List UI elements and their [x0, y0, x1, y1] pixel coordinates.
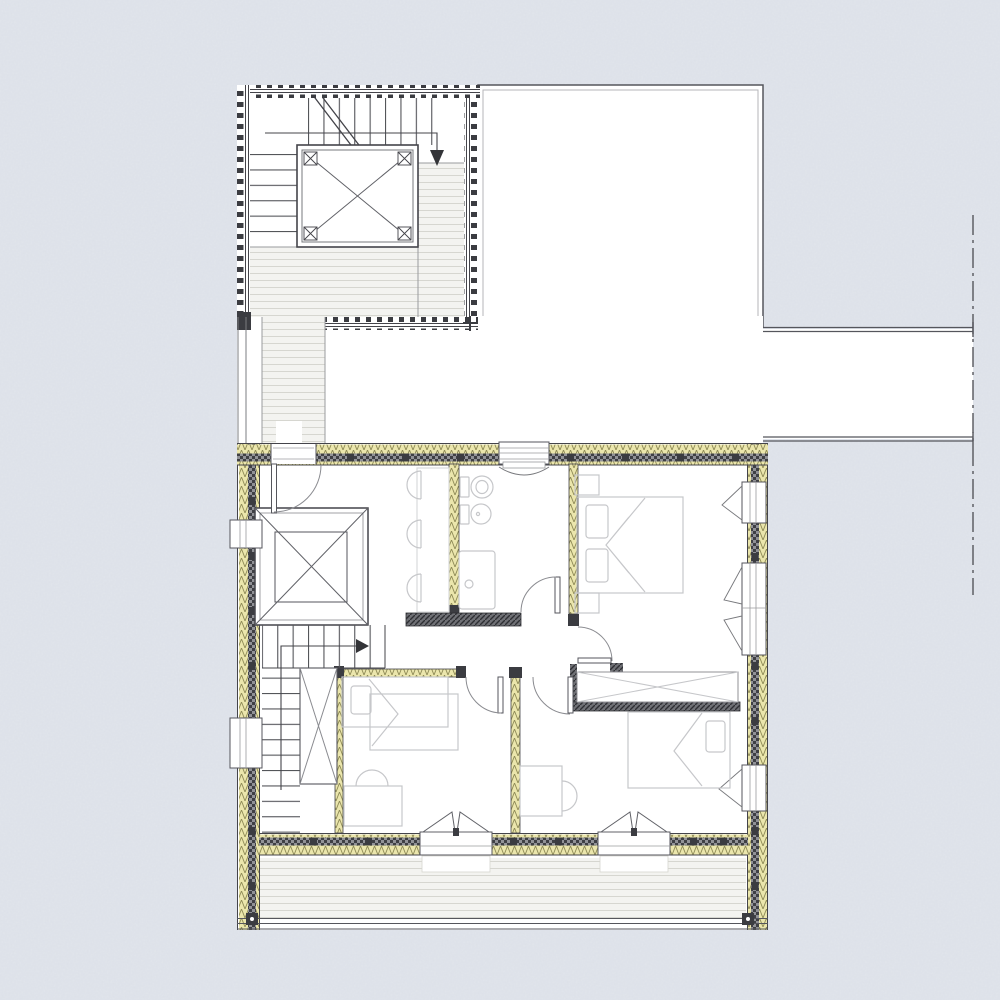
wall-bath-south-dark: [406, 613, 521, 626]
main-house: [230, 442, 768, 930]
bath-window-sill: [503, 462, 545, 468]
balcony: [237, 858, 768, 929]
adjacent-roof-outline: [478, 85, 763, 327]
roof-terrace-block: [237, 85, 480, 331]
railing-left: [237, 85, 250, 330]
wall-bottom-insulation: [259, 846, 748, 855]
french-door-2-pad: [600, 856, 668, 872]
railing-right: [464, 98, 477, 320]
entrance-threshold-pad: [276, 421, 302, 443]
wall-left-insulation: [239, 443, 248, 930]
french-door-1-mullion: [453, 828, 459, 836]
wall-bottom-lining: [259, 835, 748, 838]
bathroom-door-leaf: [555, 577, 560, 613]
master-door-leaf: [578, 658, 611, 663]
terrace-stair-left-flight: [250, 147, 297, 245]
window-right-3: [742, 765, 766, 811]
main-skylight: [255, 508, 368, 625]
bl-door-leaf: [498, 677, 503, 713]
railing-bottom: [325, 317, 478, 330]
wardrobe: [577, 672, 738, 702]
wall-bedroom-divider: [511, 677, 520, 833]
post-dot-left: [250, 917, 254, 921]
entrance-door-leaf: [272, 464, 277, 513]
balcony-deck: [260, 858, 746, 918]
window-right-1: [742, 482, 766, 523]
railing-top: [237, 85, 480, 98]
entrance-opening: [271, 444, 316, 464]
wall-bathroom-west: [449, 464, 459, 612]
french-door-1-pad: [422, 856, 490, 872]
floor-plan-drawing: [0, 0, 1000, 1000]
french-door-2-mullion: [631, 828, 637, 836]
wall-bottom-batten: [259, 838, 748, 846]
band-fill: [763, 329, 973, 439]
railing-corner-post-left: [237, 312, 251, 330]
terrace-stair-top-flight: [300, 98, 443, 145]
window-right-2: [742, 563, 766, 655]
wall-wardrobe-south: [570, 702, 740, 711]
br-door-leaf: [568, 677, 573, 713]
wall-hall-south: [343, 669, 459, 677]
terrace-deck-bottom: [250, 247, 418, 317]
terrace-deck-right: [418, 163, 464, 317]
roof-outline-rect: [478, 85, 763, 327]
floor-plan-page: [0, 0, 1000, 1000]
post-dot-right: [746, 917, 750, 921]
terrace-skylight-shaft: [297, 145, 418, 247]
